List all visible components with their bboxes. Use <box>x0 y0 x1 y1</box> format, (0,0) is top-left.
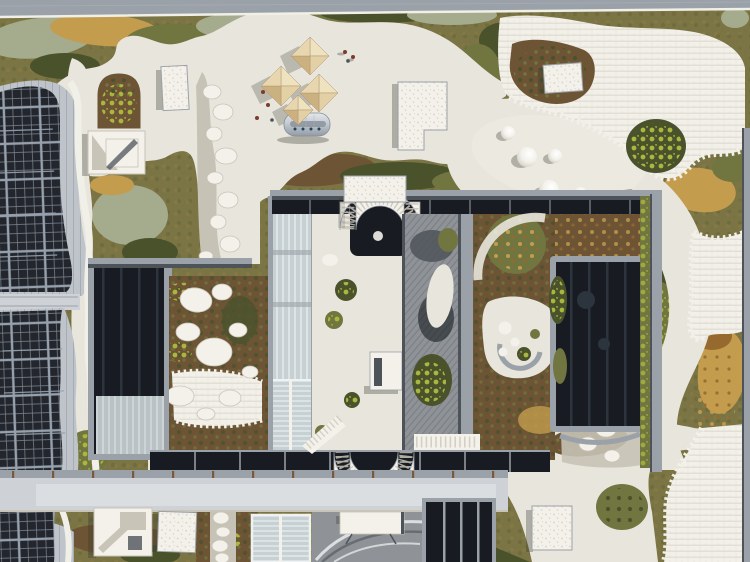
glazed-void-south <box>422 498 496 562</box>
atrium-glass-strip <box>272 214 312 454</box>
terrace-northwest <box>164 268 274 458</box>
skylight-dome <box>548 149 562 163</box>
paver-field-east <box>690 232 745 340</box>
gravel-skylight-box <box>532 506 572 550</box>
gravel-skylight-box <box>161 65 189 110</box>
gravel-skylight-box <box>157 511 196 552</box>
glazed-courtyard-void-east <box>549 256 646 443</box>
louvered-roof <box>402 214 473 460</box>
canopy-roof <box>340 512 404 534</box>
person <box>343 50 347 54</box>
stair-bulkhead-north <box>82 131 145 176</box>
skylight-dome <box>501 126 515 140</box>
person <box>351 55 355 59</box>
east-wing-band <box>640 194 662 472</box>
skylight-box-ramp <box>344 176 406 202</box>
person <box>261 90 265 94</box>
greenhouse-glazing-south <box>252 515 310 562</box>
solar-array <box>0 310 62 470</box>
gravel-skylight-box <box>543 63 583 94</box>
aerial-photo-canvas <box>0 0 750 562</box>
sunken-plaza <box>312 512 424 562</box>
skylight-dome <box>517 147 537 167</box>
solar-array <box>0 506 56 562</box>
stair-bulkhead-south <box>88 508 152 558</box>
rooftop-aerial-photo <box>0 0 750 562</box>
